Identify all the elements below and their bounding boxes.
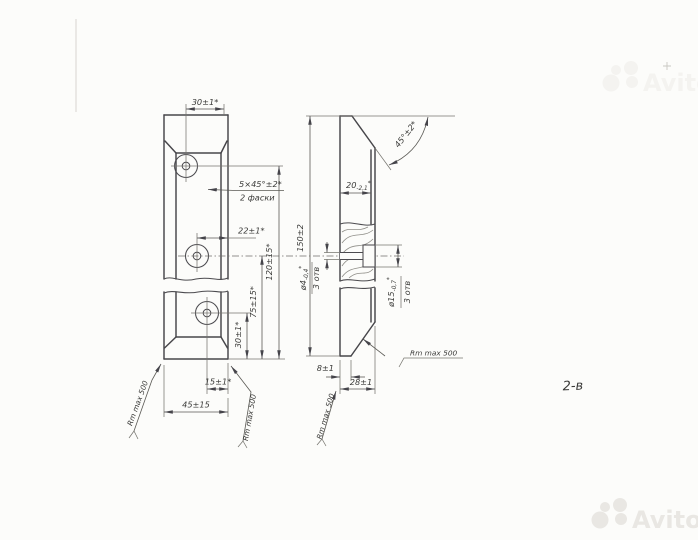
roughness-flag-side-right-label: Rm max 500 <box>410 349 458 358</box>
dim-chamfer-angle-label: 45°±2* <box>392 119 419 149</box>
avito-logo-dot <box>592 512 609 529</box>
dim-height-lower-label: 30±1* <box>233 322 243 349</box>
dim-bottom-thickness-label: 28±1 <box>350 377 373 387</box>
dim-counterbore-label: ø15-0,7* <box>386 277 398 308</box>
dim-small-hole-label: ø4-0,4* <box>298 266 310 292</box>
small-hole-clearance <box>340 252 363 260</box>
avito-logo-dot <box>624 61 638 75</box>
front-break-lines <box>164 278 228 293</box>
chamfer-note-line1: 5×45°±2* <box>239 179 282 189</box>
dim-width-top-label: 30±1* <box>192 97 219 107</box>
roughness-flag-front-right-label: Rm max 500 <box>241 393 258 441</box>
avito-logo-dot <box>611 65 621 75</box>
dim-top-width: 20-2,1* <box>340 180 371 193</box>
sheet-note: 2-в <box>562 379 583 395</box>
side-view-outline <box>340 116 375 356</box>
dim-hole-offset: 22±1* <box>197 226 265 239</box>
dim-hole-offset-label: 22±1* <box>238 226 265 236</box>
avito-logo-dot <box>626 76 638 88</box>
technical-drawing: 30±1* 5×45°±2* 2 фаски 22±1* 120±15* 75±… <box>0 0 698 540</box>
dim-bottom-thickness: 28±1 <box>340 326 375 394</box>
dim-counterbore: ø15-0,7* 3 отв <box>376 245 412 308</box>
roughness-flag-side-left-label: Rm max 500 <box>315 392 337 440</box>
dim-bottom-width-small-label: 15±1* <box>205 377 232 387</box>
roughness-flag-front-right: Rm max 500 <box>231 366 258 448</box>
roughness-flag-front-left: Rm max 500 <box>125 364 161 439</box>
dim-chamfer-angle: 45°±2* <box>375 117 428 170</box>
roughness-flag-side-left: Rm max 500 <box>315 391 337 446</box>
avito-watermark-bottom: Avito <box>592 498 698 534</box>
dim-bottom-width: 45±15 <box>164 365 228 417</box>
avito-watermark-text: Avito <box>632 506 698 534</box>
chamfer-note-line2: 2 фаски <box>240 193 275 203</box>
dim-height-mid: 75±15* <box>248 256 262 359</box>
scanned-drawing-sheet: 30±1* 5×45°±2* 2 фаски 22±1* 120±15* 75±… <box>0 0 698 540</box>
dim-top-width-label: 20-2,1* <box>346 180 371 192</box>
chamfer-note: 5×45°±2* 2 фаски <box>208 179 284 203</box>
dim-bottom-edge-label: 8±1 <box>317 363 334 373</box>
front-view-outline <box>164 115 228 359</box>
dim-height-mid-label: 75±15* <box>248 286 258 318</box>
dim-small-hole-count: 3 отв <box>311 267 321 290</box>
side-view: 150±2 20-2,1* 45°±2* ø15-0,7* 3 отв ø4-0… <box>295 116 463 446</box>
dim-height-lower: 30±1* <box>233 313 247 359</box>
dim-side-height-label: 150±2 <box>295 224 305 252</box>
avito-logo-dot <box>615 513 627 525</box>
avito-watermark-top: Avito <box>603 61 698 97</box>
avito-logo-dot <box>613 498 627 512</box>
avito-logo-dot <box>600 502 610 512</box>
dim-bottom-width-small: 15±1* <box>205 363 232 394</box>
dim-counterbore-count: 3 отв <box>402 281 412 304</box>
avito-logo-dot <box>603 75 620 92</box>
counterbore-section <box>363 245 375 267</box>
dim-width-top: 30±1* <box>186 97 224 116</box>
roughness-flag-side-right: Rm max 500 <box>363 339 463 367</box>
front-view: 30±1* 5×45°±2* 2 фаски 22±1* 120±15* 75±… <box>125 97 404 448</box>
counterbore-hole-middle <box>186 233 209 272</box>
avito-watermark-text: Avito <box>643 69 698 97</box>
dim-bottom-width-label: 45±15 <box>182 400 210 410</box>
dim-height-overall-label: 120±15* <box>264 244 274 281</box>
